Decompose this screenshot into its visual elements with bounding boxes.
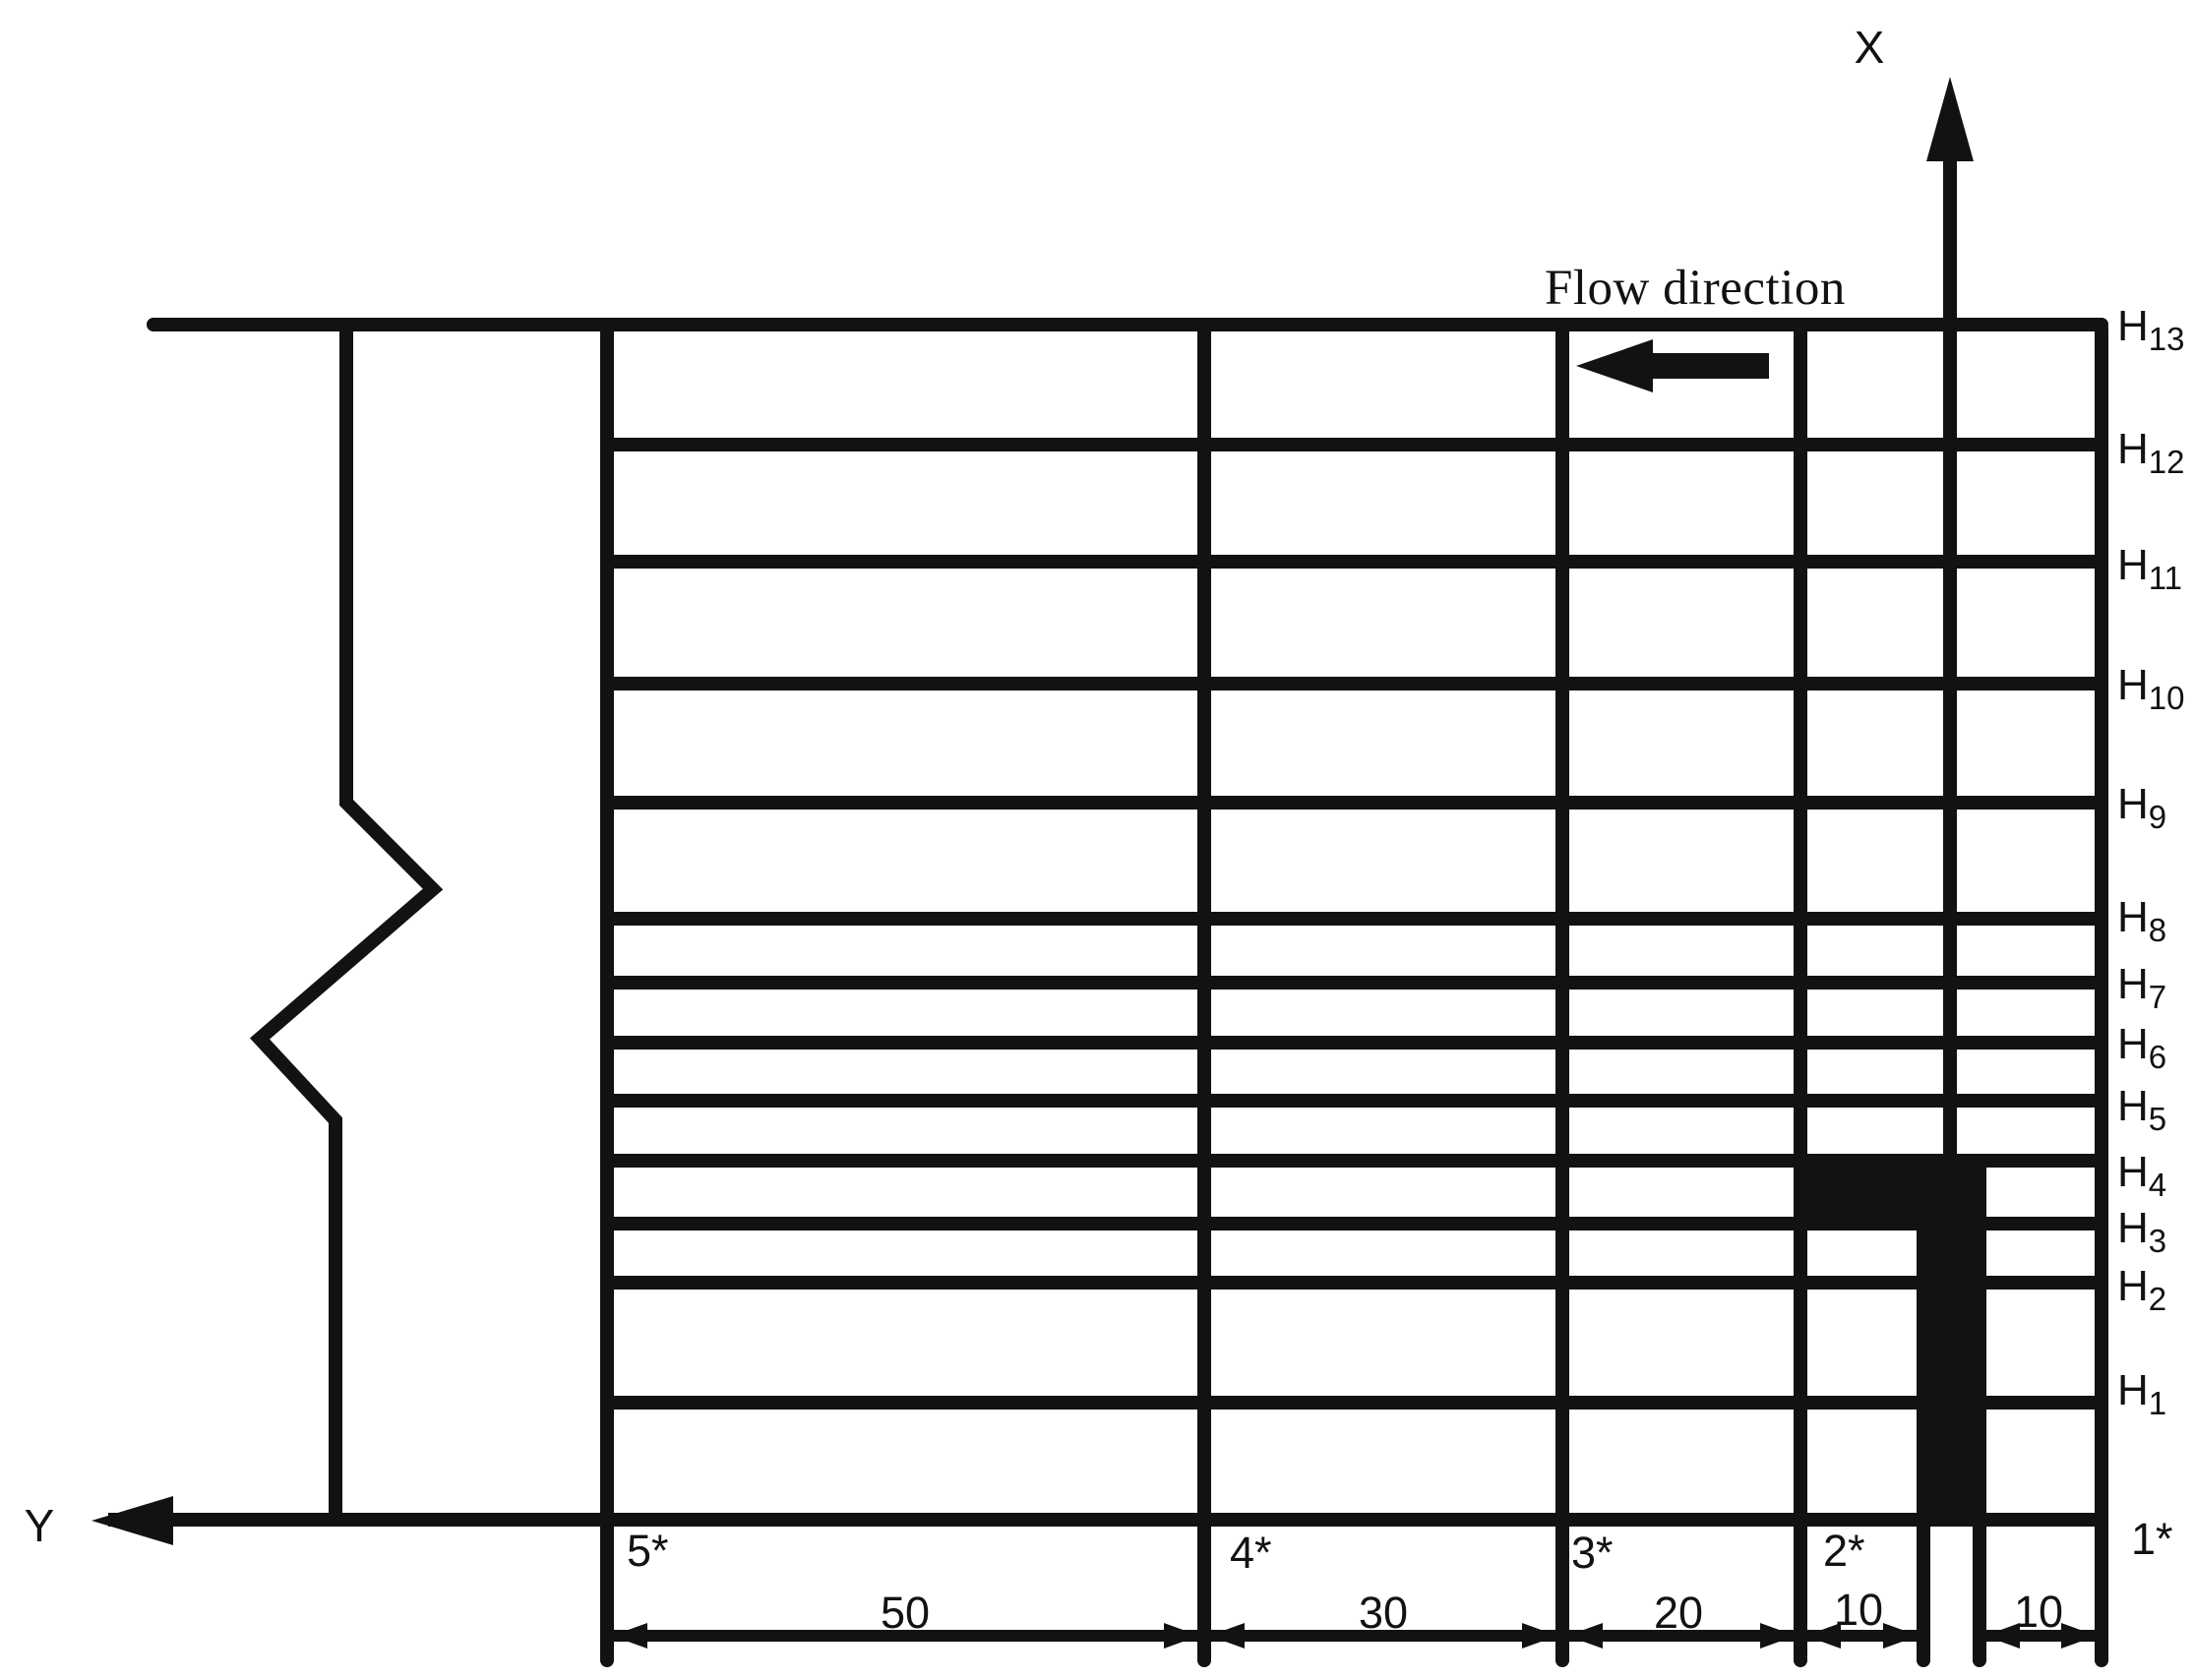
svg-text:4*: 4* — [1230, 1528, 1272, 1578]
svg-text:2*: 2* — [1823, 1526, 1865, 1576]
svg-text:Flow direction: Flow direction — [1545, 261, 1846, 316]
svg-text:10: 10 — [1834, 1585, 1883, 1635]
svg-text:5*: 5* — [627, 1526, 669, 1576]
svg-text:30: 30 — [1359, 1588, 1408, 1638]
svg-text:10: 10 — [2014, 1587, 2063, 1637]
svg-text:20: 20 — [1654, 1588, 1703, 1638]
svg-text:1*: 1* — [2131, 1514, 2173, 1564]
svg-text:Y: Y — [25, 1500, 55, 1551]
svg-text:50: 50 — [881, 1588, 930, 1638]
svg-text:X: X — [1855, 22, 1885, 73]
svg-text:3*: 3* — [1571, 1528, 1614, 1578]
